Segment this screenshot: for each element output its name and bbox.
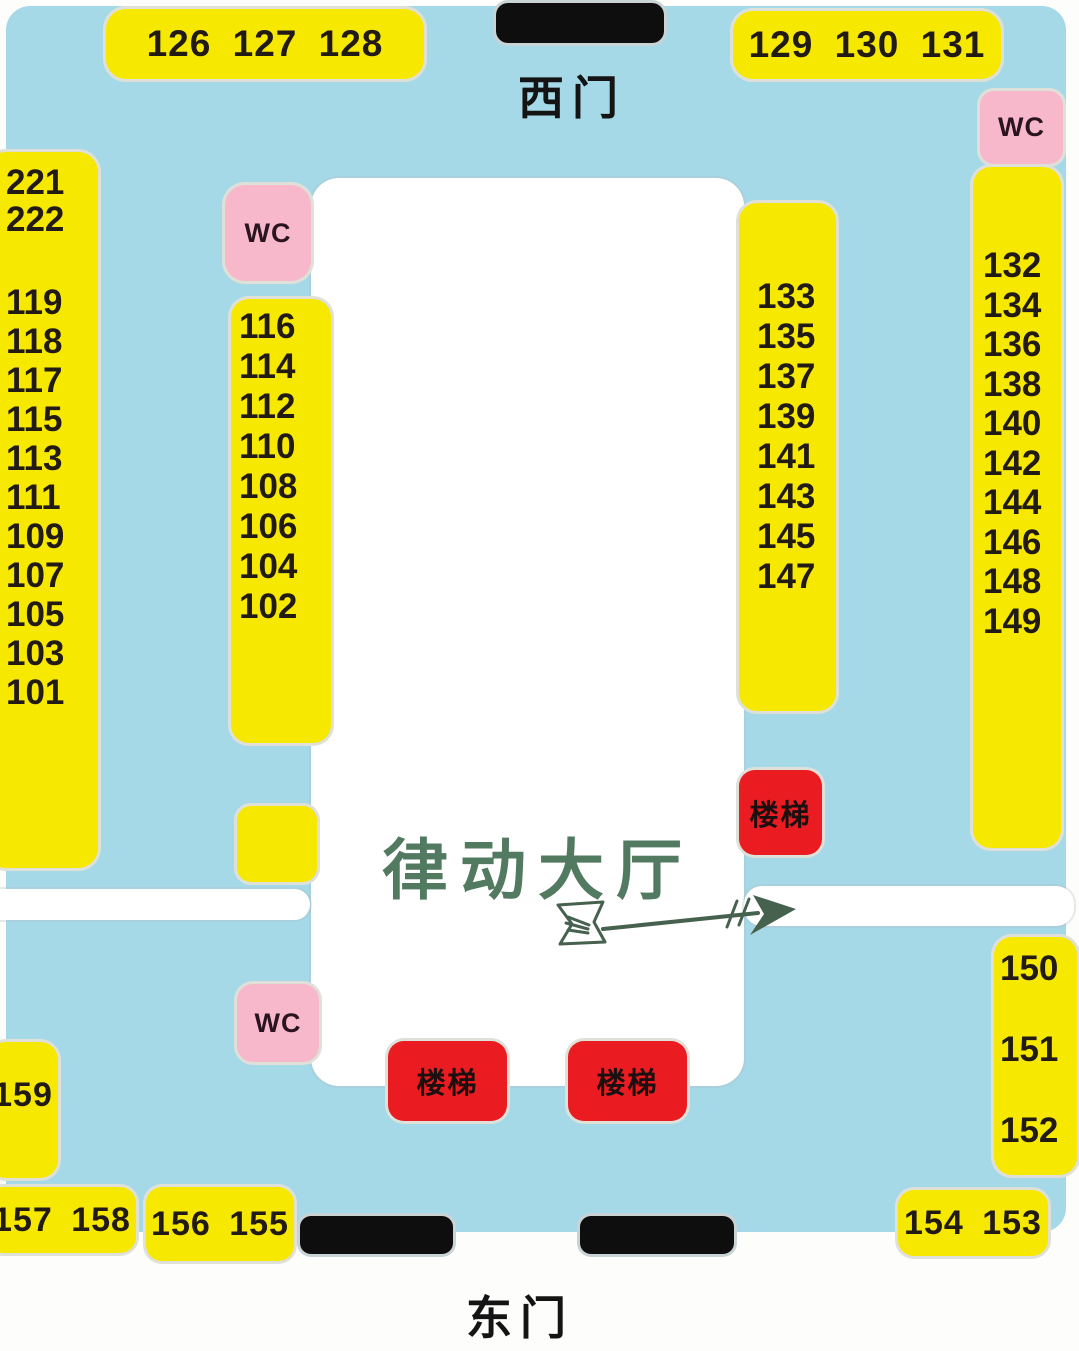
booth-number: 142: [983, 444, 1061, 484]
wc-block-mid-left: WC: [225, 185, 311, 281]
west-corridor: [0, 889, 310, 920]
stairs-block-east: 楼梯: [739, 770, 822, 855]
arrow-icon: [540, 878, 810, 953]
booth-number: 150: [1000, 949, 1077, 989]
booth-number: 119: [6, 283, 98, 322]
booth-number: 147: [757, 557, 836, 597]
west-gate-door-bar: [496, 3, 664, 43]
booth-number: 148: [983, 562, 1061, 602]
booth-numbers: 156 155: [151, 1205, 289, 1244]
booth-number: 104: [239, 547, 331, 587]
booth-column-right-inner: 133135137139141143145147: [739, 203, 836, 711]
floor-plan-canvas: 西门 东门 126 127 128 129 130 131 WC WC WC 2…: [0, 0, 1079, 1351]
booth-numbers: 126 127 128: [147, 23, 384, 65]
wc-label: WC: [255, 1008, 302, 1039]
booth-numbers: 157 158: [0, 1201, 131, 1240]
wc-block-top-right: WC: [980, 91, 1063, 164]
booth-number: 111: [6, 478, 98, 517]
booth-number: 108: [239, 467, 331, 507]
booth-number: 106: [239, 507, 331, 547]
booth-number: 105: [6, 595, 98, 634]
west-gate-label: 西门: [497, 62, 647, 128]
wc-label: WC: [998, 112, 1045, 143]
wc-label: WC: [245, 218, 292, 249]
booth-number-list: 119118117115113111109107105103101: [6, 283, 98, 712]
booth-block-129-131: 129 130 131: [733, 11, 1001, 79]
stairs-label: 楼梯: [749, 792, 811, 834]
booth-number: 109: [6, 517, 98, 556]
booth-numbers: 129 130 131: [749, 24, 986, 66]
booth-number: 112: [239, 387, 331, 427]
booth-column-right-lower: 150151152: [994, 937, 1077, 1175]
stairs-label: 楼梯: [596, 1060, 658, 1102]
booth-numbers: 159: [0, 1076, 53, 1115]
booth-number: 139: [757, 397, 836, 437]
booth-number: 114: [239, 347, 331, 387]
booth-number: 145: [757, 517, 836, 557]
booth-number: 144: [983, 483, 1061, 523]
booth-number: 140: [983, 404, 1061, 444]
east-gate-door-bar-left: [300, 1216, 453, 1254]
booth-block-154-153: 154 153: [898, 1190, 1048, 1256]
booth-number: 143: [757, 477, 836, 517]
booth-number: 110: [239, 427, 331, 467]
booth-block-157-158: 157 158: [0, 1187, 136, 1253]
booth-number-list: 221222: [6, 164, 98, 238]
booth-block-159: 159: [0, 1042, 58, 1178]
wc-block-bottom-left: WC: [237, 984, 319, 1062]
booth-block-126-128: 126 127 128: [106, 9, 424, 79]
booth-number: 141: [757, 437, 836, 477]
east-gate-door-bar-right: [580, 1216, 734, 1254]
booth-block-156-155: 156 155: [146, 1187, 294, 1261]
booth-number: 152: [1000, 1111, 1077, 1151]
booth-number: 146: [983, 523, 1061, 563]
booth-column-left-inner: 116114112110108106104102: [231, 299, 331, 743]
booth-number: 103: [6, 634, 98, 673]
booth-number: 113: [6, 439, 98, 478]
booth-number: 135: [757, 317, 836, 357]
booth-number: 107: [6, 556, 98, 595]
booth-number: 116: [239, 307, 331, 347]
booth-number: 101: [6, 673, 98, 712]
booth-number: 138: [983, 365, 1061, 405]
booth-number: 149: [983, 602, 1061, 642]
booth-number: 136: [983, 325, 1061, 365]
booth-number: 134: [983, 286, 1061, 326]
booth-numbers: 154 153: [904, 1204, 1042, 1243]
stairs-block-south-left: 楼梯: [388, 1041, 507, 1121]
booth-column-right-outer: 132134136138140142144146148149: [973, 167, 1061, 848]
booth-number: 117: [6, 361, 98, 400]
booth-number: 132: [983, 246, 1061, 286]
booth-number: 151: [1000, 1030, 1077, 1070]
stairs-block-south-right: 楼梯: [568, 1041, 687, 1121]
east-gate-label: 东门: [440, 1282, 600, 1348]
stairs-label: 楼梯: [416, 1060, 478, 1102]
booth-number: 221: [6, 164, 98, 201]
booth-number: 222: [6, 201, 98, 238]
booth-number: 102: [239, 587, 331, 627]
booth-number: 115: [6, 400, 98, 439]
booth-number: 118: [6, 322, 98, 361]
booth-column-left-outer: 221222 119118117115113111109107105103101: [0, 152, 98, 868]
booth-number: 137: [757, 357, 836, 397]
booth-number: 133: [757, 277, 836, 317]
booth-block-unlabeled: [237, 806, 317, 882]
